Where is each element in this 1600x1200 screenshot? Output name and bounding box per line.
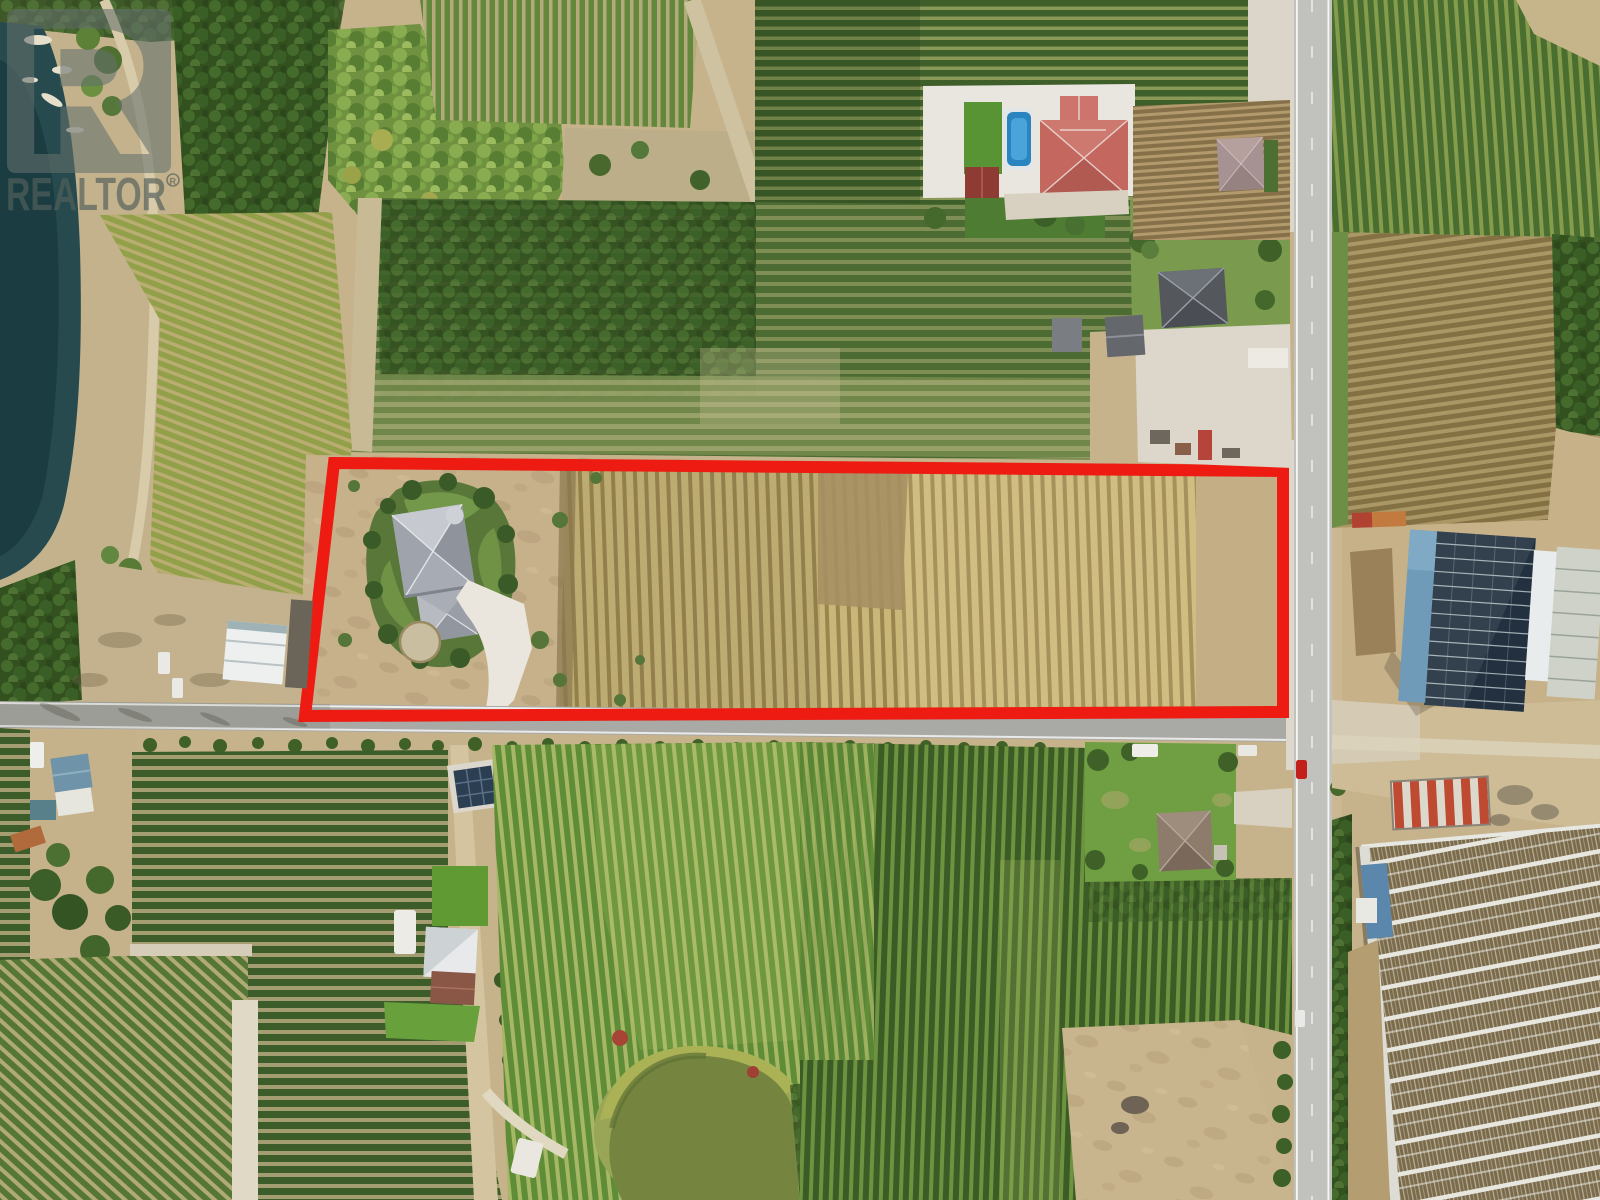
svg-text:R: R [170,177,177,187]
svg-text:REALTOR: REALTOR [6,168,166,220]
